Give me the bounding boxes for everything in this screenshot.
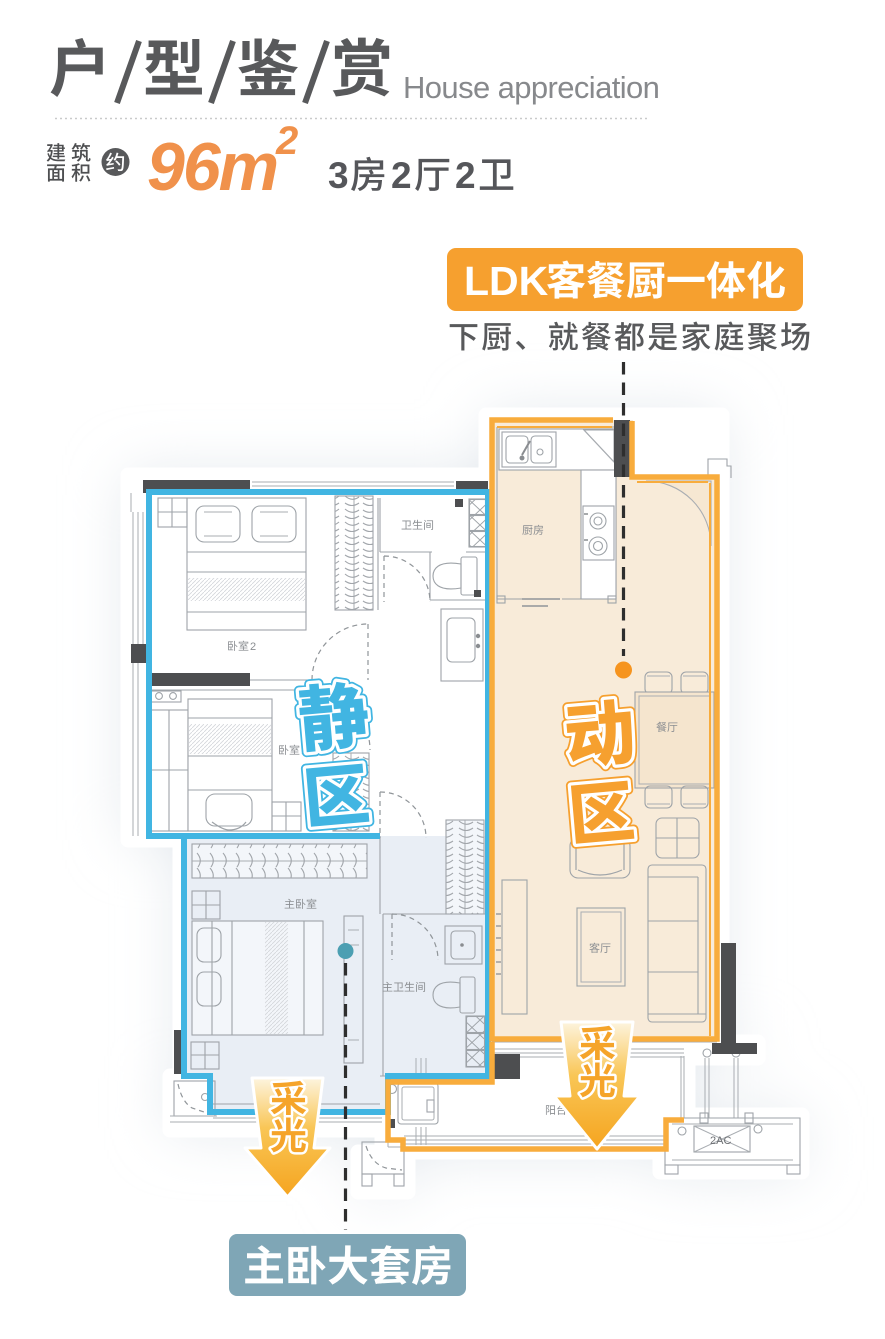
svg-text:2: 2 — [250, 641, 256, 653]
svg-text:LDK: LDK — [464, 258, 549, 304]
svg-text:House appreciation: House appreciation — [403, 70, 659, 105]
svg-text:3: 3 — [328, 155, 349, 196]
svg-text:96m: 96m — [147, 129, 277, 205]
svg-text:2: 2 — [455, 155, 476, 196]
svg-text:2AC: 2AC — [710, 1135, 731, 1147]
svg-text:2: 2 — [275, 119, 298, 163]
svg-text:2: 2 — [391, 155, 412, 196]
